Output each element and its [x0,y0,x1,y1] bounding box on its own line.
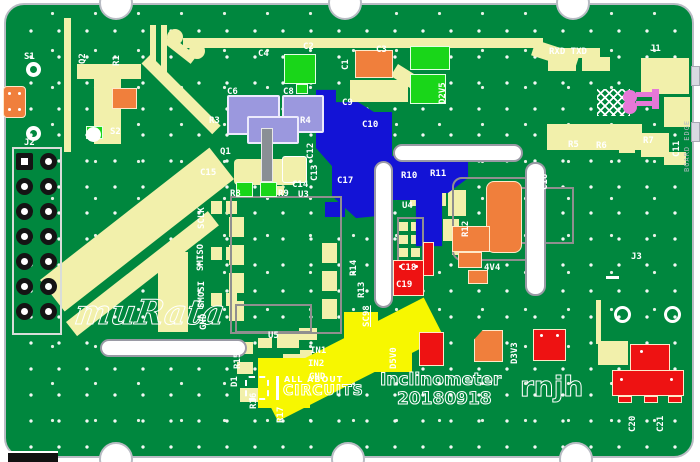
pad [350,80,408,102]
silkscreen-label-gnd: GND [199,314,209,330]
pad [211,201,222,214]
pink-bar [652,89,659,109]
pad [211,247,222,260]
component-red-large-base [612,370,684,396]
component-green [410,46,450,70]
solder-dot [540,334,543,337]
silkscreen-label-c13: C13 [310,165,320,181]
connector-pin1-hole [16,153,33,170]
silkscreen-label-d2v5: D2V5 [438,82,448,104]
solder-dot [8,92,11,95]
silkscreen-label-r6: R6 [596,141,607,151]
silkscreen-label-r14: R14 [349,260,359,276]
silkscreen-label-sclk: SCLK [197,207,207,229]
solder-dot [670,378,673,381]
connector-hole [40,153,57,170]
capacitor-arm [452,226,490,252]
silkscreen-label-c15: C15 [200,168,216,178]
connector-hole [40,178,57,195]
connector-hole [16,253,33,270]
silkscreen-label-c8: C8 [283,87,294,97]
silkscreen-label-gnd: GND [309,372,325,382]
logo-divider [276,376,279,400]
component-c3 [355,50,393,78]
silkscreen-label-q2: Q2 [78,53,88,64]
trace-segment [77,64,141,79]
silkscreen-label-c4: C4 [258,49,269,59]
silkscreen-label-r3: R3 [209,116,220,126]
silkscreen-label-in2: IN2 [308,359,324,369]
capacitor-body [486,181,522,253]
silkscreen-label-c10: C10 [362,120,378,130]
transistor-q2 [260,182,277,197]
connector-j1-pads [641,58,689,94]
silkscreen-label-r11: R11 [430,169,446,179]
silkscreen-label-u4: U4 [402,201,413,211]
silkscreen-label-r13: R13 [357,282,367,298]
silkscreen-label-sc98: SC98 [362,305,372,327]
silkscreen-label-c3: C3 [376,45,387,55]
board-title: Inclinometer [380,370,501,390]
trace-segment [64,18,71,152]
silkscreen-label-r4: R4 [300,116,311,126]
solder-dot [640,350,643,353]
pad [598,341,628,365]
component-c15 [282,156,307,183]
courtyard-u5 [235,304,312,333]
connector-hole [40,278,57,295]
silkscreen-label-d3v3: D3V3 [510,342,520,364]
silkscreen-label-r7: R7 [643,136,654,146]
silkscreen-label-c2: C2 [303,42,314,52]
silkscreen-label-c11: C11 [672,141,682,157]
silkscreen-label-c6: C6 [227,87,238,97]
pad [618,396,632,403]
silkscreen-label-smosi: SMOSI [197,281,207,308]
component-s1 [3,86,26,118]
silkscreen-label-rxd-txd: RXD TXD [549,47,587,57]
silkscreen-label-r17: R17 [276,407,286,423]
silkscreen-label-s2: S2 [110,127,121,137]
silkscreen-label-r9: R9 [278,189,289,199]
silkscreen-label-d1: D1 [230,376,240,387]
solder-dot [620,378,623,381]
edge-tab [691,66,700,86]
silkscreen-label-c16: C16 [540,174,550,190]
fiducial-pad [614,306,631,323]
pad [548,57,576,71]
fiducial-pad [664,306,681,323]
trace-segment [596,300,601,344]
silkscreen-label-c18: C18 [400,263,416,273]
silkscreen-label-s1: S1 [24,52,35,62]
silkscreen-label-c20: C20 [628,416,638,432]
component-center [247,116,299,144]
connector-hole [16,228,33,245]
component-red [423,242,434,276]
silkscreen-label-r16: R16 [249,393,259,409]
connector-hole [40,303,57,320]
connector-hole [16,203,33,220]
silkscreen-label-j2: J2 [24,138,35,148]
pad [277,334,299,348]
slot-cutout [374,161,393,308]
capacitor-pad [458,252,482,268]
silkscreen-label-4v4: 4V4 [484,263,500,273]
silkscreen-label-r10: R10 [401,171,417,181]
component-red [533,329,566,361]
silkscreen-label-r1: R1 [112,55,122,66]
connector-hole [40,203,57,220]
trace-segment [183,38,543,48]
silkscreen-label-q1: Q1 [220,147,231,157]
silkscreen-label-vref-: VREF + [404,153,437,163]
silkscreen-label-c21: C21 [656,416,666,432]
pad [644,396,658,403]
silkscreen-label-c9: C9 [342,98,353,108]
connector-hole [40,253,57,270]
component-green [296,84,308,94]
connector-hole [16,303,33,320]
board-edge-text: BOARD EDGE [683,120,691,172]
connector-hole [16,178,33,195]
silkscreen-label-r5: R5 [568,140,579,150]
silkscreen-label-u3: U3 [298,190,309,200]
silkscreen-label-r15: R15 [233,353,243,369]
silkscreen-label-u5: U5 [268,331,279,341]
component-red-large [630,344,670,372]
solder-dot [8,108,11,111]
silkscreen-label-in1: IN1 [310,346,326,356]
via-large [86,127,101,142]
board-date: 20180918 [397,389,492,409]
silkscreen-label-r8: R8 [230,189,241,199]
edge-tab [691,122,700,142]
author-initials: rnjh [520,370,583,403]
silkscreen-label-c12: C12 [306,143,316,159]
slot-cutout [100,339,247,357]
pcb-screenshot: muRata ALL ABOUT CIRCUITS Inclinometer 2… [0,0,700,462]
solder-dot [556,334,559,337]
silkscreen-label-smiso: SMISO [196,244,206,271]
silkscreen-label-c1: C1 [341,59,351,70]
aac-logo-line2: CIRCUITS [283,383,364,399]
trace-segment [547,124,642,150]
silkscreen-dash [606,276,619,279]
connector-hole [40,228,57,245]
solder-dot [18,108,21,111]
component-c4 [284,54,316,84]
silkscreen-label-j3: J3 [631,252,642,262]
pink-pad [623,100,637,114]
component-orange [112,88,137,109]
connector-stub [8,451,58,462]
mounting-hole [26,62,41,77]
silkscreen-label-c14: C14 [292,180,308,190]
solder-dot [18,92,21,95]
gray-stem [261,128,273,182]
silkscreen-label-c19: C19 [396,280,412,290]
pad [668,396,682,403]
pad [582,57,610,71]
component-red [419,332,444,366]
connector-hole [16,278,33,295]
silkscreen-label-d5v0: D5V0 [389,347,399,369]
silkscreen-label-c17: C17 [337,176,353,186]
silkscreen-label-j1: J1 [650,44,661,54]
silkscreen-label-r12: R12 [461,221,471,237]
